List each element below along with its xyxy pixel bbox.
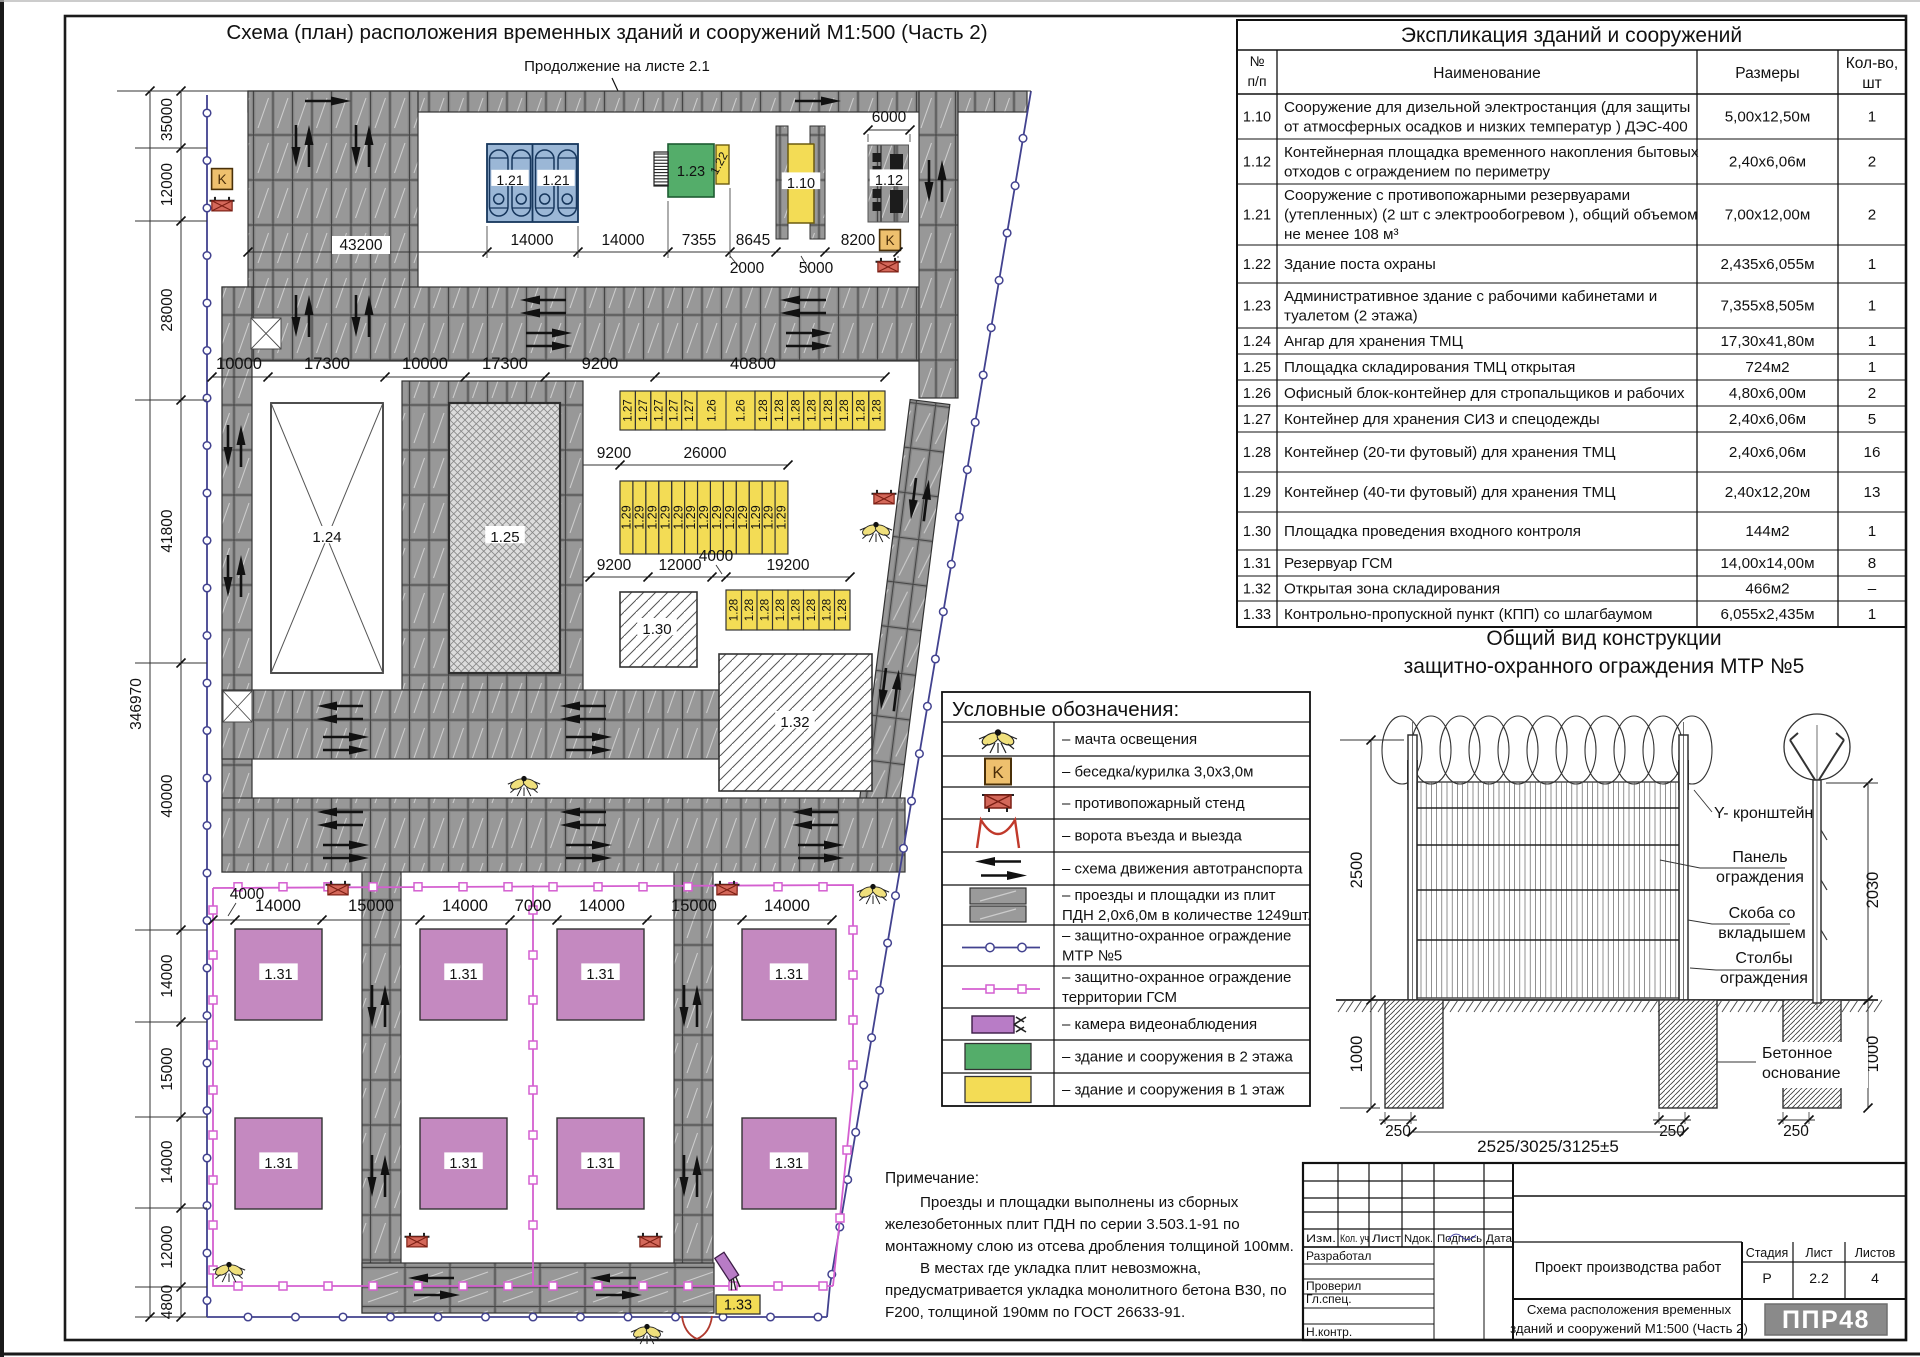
- svg-text:– мачта освещения: – мачта освещения: [1062, 731, 1197, 748]
- svg-text:26000: 26000: [683, 445, 726, 462]
- svg-text:(утепленных) (2 шт с электрооб: (утепленных) (2 шт с электрообогревом ),…: [1284, 207, 1698, 224]
- svg-text:предусматривается укладка моно: предусматривается укладка монолитного бе…: [885, 1282, 1287, 1299]
- svg-text:1.25: 1.25: [490, 529, 519, 546]
- svg-text:1.29: 1.29: [762, 505, 776, 529]
- svg-text:15000: 15000: [348, 897, 394, 915]
- svg-text:1.31: 1.31: [586, 1156, 614, 1172]
- svg-text:Офисный блок-контейнер для стр: Офисный блок-контейнер для стропальщиков…: [1284, 385, 1685, 402]
- svg-text:1.28: 1.28: [837, 599, 849, 621]
- svg-text:Примечание:: Примечание:: [885, 1170, 979, 1187]
- svg-text:7,00х12,00м: 7,00х12,00м: [1725, 207, 1811, 224]
- svg-text:вкладышем: вкладышем: [1718, 925, 1805, 942]
- svg-text:Размеры: Размеры: [1735, 65, 1799, 82]
- svg-text:монтажному слою из отсева дроб: монтажному слою из отсева дробления толщ…: [885, 1238, 1294, 1255]
- svg-text:Резервуар ГСМ: Резервуар ГСМ: [1284, 555, 1393, 572]
- svg-text:п/п: п/п: [1247, 73, 1266, 89]
- svg-text:Столбы: Столбы: [1735, 950, 1792, 967]
- svg-text:17300: 17300: [304, 355, 350, 373]
- svg-text:6000: 6000: [872, 109, 907, 126]
- svg-text:1.28: 1.28: [790, 399, 802, 421]
- svg-text:1000: 1000: [1348, 1036, 1366, 1073]
- svg-text:ПДН 2,0х6,0м в количестве 1249: ПДН 2,0х6,0м в количестве 1249шт.: [1062, 907, 1311, 924]
- svg-text:1: 1: [1868, 333, 1876, 350]
- svg-text:9200: 9200: [582, 355, 619, 373]
- svg-text:Панель: Панель: [1732, 849, 1787, 866]
- svg-text:Nдок.: Nдок.: [1404, 1233, 1433, 1245]
- svg-text:Y- кронштейн: Y- кронштейн: [1714, 805, 1813, 822]
- svg-text:14000: 14000: [764, 897, 810, 915]
- svg-text:2,40х6,06м: 2,40х6,06м: [1729, 411, 1806, 428]
- svg-text:основание: основание: [1762, 1065, 1841, 1082]
- svg-text:1.28: 1.28: [774, 399, 786, 421]
- svg-text:зданий и сооружений М1:500 (Ча: зданий и сооружений М1:500 (Часть 2): [1510, 1321, 1748, 1336]
- svg-text:Стадия: Стадия: [1746, 1246, 1789, 1260]
- svg-text:1.29: 1.29: [1243, 485, 1271, 501]
- svg-text:Общий вид конструкции: Общий вид конструкции: [1486, 627, 1721, 650]
- svg-text:1.31: 1.31: [449, 1156, 477, 1172]
- svg-text:Наименование: Наименование: [1433, 65, 1540, 82]
- svg-text:1.31: 1.31: [1243, 556, 1271, 572]
- svg-text:2525/3025/3125±5: 2525/3025/3125±5: [1477, 1137, 1619, 1156]
- svg-text:– здание и сооружения в 2 эта: – здание и сооружения в 2 этажа: [1062, 1049, 1293, 1066]
- svg-text:Проект производства работ: Проект производства работ: [1535, 1260, 1722, 1276]
- svg-text:F200, толщиной 190мм по ГОСТ 2: F200, толщиной 190мм по ГОСТ 26633-91.: [885, 1304, 1185, 1321]
- svg-text:Административное здание с рабо: Административное здание с рабочими кабин…: [1284, 288, 1657, 305]
- svg-text:144м2: 144м2: [1745, 523, 1789, 540]
- svg-text:1: 1: [1868, 298, 1876, 315]
- svg-text:Р: Р: [1762, 1270, 1771, 1286]
- svg-text:1.28: 1.28: [839, 399, 851, 421]
- svg-text:Площадка складирования ТМЦ отк: Площадка складирования ТМЦ открытая: [1284, 359, 1575, 376]
- svg-text:1.28: 1.28: [758, 399, 770, 421]
- svg-text:1.27: 1.27: [1243, 412, 1271, 428]
- svg-text:– защитно-охранное ограждение: – защитно-охранное ограждение: [1062, 928, 1291, 945]
- svg-text:8645: 8645: [736, 232, 770, 249]
- svg-text:14000: 14000: [601, 232, 644, 249]
- svg-text:1.31: 1.31: [264, 967, 292, 983]
- svg-text:5: 5: [1868, 411, 1876, 428]
- svg-text:МТР №5: МТР №5: [1062, 948, 1122, 965]
- svg-text:1.26: 1.26: [1243, 386, 1271, 402]
- svg-text:–: –: [1868, 581, 1877, 598]
- svg-text:Кол-во,: Кол-во,: [1846, 55, 1899, 72]
- svg-text:2,40х6,06м: 2,40х6,06м: [1729, 444, 1806, 461]
- svg-text:2,40х6,06м: 2,40х6,06м: [1729, 154, 1806, 171]
- svg-text:13: 13: [1864, 484, 1881, 501]
- svg-text:Открытая зона складирования: Открытая зона складирования: [1284, 581, 1500, 598]
- svg-text:14000: 14000: [442, 897, 488, 915]
- svg-text:ППР48: ППР48: [1782, 1306, 1870, 1334]
- svg-text:Контрольно-пропускной пункт (К: Контрольно-пропускной пункт (КПП) со шла…: [1284, 606, 1652, 623]
- svg-text:Н.контр.: Н.контр.: [1306, 1325, 1352, 1339]
- svg-text:1.29: 1.29: [671, 505, 685, 529]
- svg-text:1.29: 1.29: [749, 505, 763, 529]
- svg-text:Бетонное: Бетонное: [1762, 1045, 1832, 1062]
- svg-text:Схема расположения временных: Схема расположения временных: [1527, 1302, 1732, 1317]
- svg-text:1: 1: [1868, 359, 1876, 376]
- svg-text:1.21: 1.21: [496, 172, 523, 188]
- svg-text:10000: 10000: [402, 355, 448, 373]
- svg-text:железобетонных плит ПДН по сер: железобетонных плит ПДН по серии 3.503.1…: [885, 1216, 1240, 1233]
- svg-text:1.27: 1.27: [638, 399, 650, 421]
- svg-text:1.28: 1.28: [791, 599, 803, 621]
- svg-text:1.32: 1.32: [1243, 582, 1271, 598]
- svg-text:14000: 14000: [159, 1140, 176, 1183]
- svg-text:2: 2: [1868, 385, 1876, 402]
- svg-text:19200: 19200: [766, 557, 809, 574]
- svg-text:15000: 15000: [159, 1047, 176, 1090]
- svg-text:Ангар для хранения ТМЦ: Ангар для хранения ТМЦ: [1284, 333, 1463, 350]
- svg-text:28000: 28000: [159, 288, 176, 331]
- svg-text:5000: 5000: [799, 260, 834, 277]
- svg-text:14000: 14000: [579, 897, 625, 915]
- svg-text:2500: 2500: [1348, 852, 1366, 889]
- svg-text:1.28: 1.28: [760, 599, 772, 621]
- svg-text:не менее 108 м³: не менее 108 м³: [1284, 226, 1399, 243]
- svg-text:17300: 17300: [482, 355, 528, 373]
- svg-text:Здание поста охраны: Здание поста охраны: [1284, 256, 1436, 273]
- svg-text:7,355х8,505м: 7,355х8,505м: [1720, 298, 1814, 315]
- svg-text:14000: 14000: [510, 232, 553, 249]
- svg-text:Контейнерная площадка временно: Контейнерная площадка временного накопле…: [1284, 144, 1699, 161]
- svg-text:41800: 41800: [159, 509, 176, 552]
- svg-text:Изм.: Изм.: [1306, 1233, 1336, 1245]
- svg-text:1.29: 1.29: [645, 505, 659, 529]
- svg-text:7355: 7355: [682, 232, 716, 249]
- svg-text:40800: 40800: [730, 355, 776, 373]
- svg-text:1.27: 1.27: [622, 399, 634, 421]
- svg-text:1.24: 1.24: [1243, 334, 1271, 350]
- svg-text:1.28: 1.28: [855, 399, 867, 421]
- svg-text:2,40х12,20м: 2,40х12,20м: [1725, 484, 1811, 501]
- svg-text:территории ГСМ: территории ГСМ: [1062, 989, 1177, 1006]
- svg-text:– противопожарный стенд: – противопожарный стенд: [1062, 795, 1245, 812]
- svg-text:Лист: Лист: [1372, 1233, 1401, 1245]
- svg-text:35000: 35000: [159, 98, 176, 141]
- svg-text:ограждения: ограждения: [1720, 970, 1808, 987]
- svg-text:12000: 12000: [658, 557, 701, 574]
- svg-text:1.28: 1.28: [1243, 445, 1271, 461]
- svg-text:– ворота въезда и выезда: – ворота въезда и выезда: [1062, 828, 1242, 845]
- svg-text:– схема движения автотранспор: – схема движения автотранспорта: [1062, 861, 1303, 878]
- svg-text:4: 4: [1871, 1270, 1879, 1286]
- svg-text:1.31: 1.31: [775, 967, 803, 983]
- svg-text:12000: 12000: [159, 163, 176, 206]
- svg-text:1.26: 1.26: [736, 399, 748, 421]
- svg-text:2: 2: [1868, 154, 1876, 171]
- svg-text:1.29: 1.29: [710, 505, 724, 529]
- svg-text:1: 1: [1868, 606, 1876, 623]
- svg-text:1.30: 1.30: [1243, 524, 1271, 540]
- svg-text:250: 250: [1783, 1123, 1809, 1140]
- svg-text:1.25: 1.25: [1243, 360, 1271, 376]
- svg-text:1.28: 1.28: [744, 599, 756, 621]
- svg-text:Площадка проведения входного к: Площадка проведения входного контроля: [1284, 523, 1581, 540]
- svg-text:1.28: 1.28: [806, 599, 818, 621]
- svg-text:1.21: 1.21: [542, 172, 569, 188]
- svg-text:1.33: 1.33: [724, 1298, 752, 1314]
- svg-text:14,00х14,00м: 14,00х14,00м: [1720, 555, 1814, 572]
- svg-text:1.23: 1.23: [677, 164, 705, 180]
- svg-text:43200: 43200: [339, 237, 382, 254]
- svg-text:Сооружение с противопожарными: Сооружение с противопожарными резервуара…: [1284, 187, 1630, 204]
- svg-text:Разработал: Разработал: [1306, 1249, 1371, 1263]
- svg-text:– проезды и площадки из плит: – проезды и площадки из плит: [1062, 887, 1276, 904]
- svg-text:1: 1: [1868, 109, 1876, 126]
- svg-text:В местах где укладка плит нево: В местах где укладка плит невозможна,: [920, 1260, 1201, 1277]
- svg-text:16: 16: [1864, 444, 1881, 461]
- svg-text:Гл.спец.: Гл.спец.: [1306, 1292, 1352, 1306]
- svg-text:1.29: 1.29: [620, 505, 634, 529]
- svg-text:1.29: 1.29: [633, 505, 647, 529]
- svg-text:1.29: 1.29: [697, 505, 711, 529]
- svg-text:Скоба со: Скоба со: [1729, 905, 1796, 922]
- svg-text:1.28: 1.28: [823, 399, 835, 421]
- svg-text:5,00х12,50м: 5,00х12,50м: [1725, 109, 1811, 126]
- svg-text:защитно-охранного ограждения М: защитно-охранного ограждения МТР №5: [1404, 655, 1805, 678]
- svg-text:14000: 14000: [159, 954, 176, 997]
- svg-text:Экспликация зданий и сооружени: Экспликация зданий и сооружений: [1401, 24, 1742, 47]
- svg-text:4800: 4800: [159, 1284, 176, 1319]
- svg-text:Условные обозначения:: Условные обозначения:: [952, 698, 1179, 721]
- svg-text:Дата: Дата: [1486, 1233, 1513, 1245]
- svg-text:Продолжение на листе 2.1: Продолжение на листе 2.1: [524, 58, 710, 75]
- svg-text:1.30: 1.30: [642, 621, 671, 638]
- svg-text:4,80х6,00м: 4,80х6,00м: [1729, 385, 1806, 402]
- svg-text:ограждения: ограждения: [1716, 869, 1804, 886]
- svg-text:шт: шт: [1862, 75, 1882, 92]
- svg-text:346970: 346970: [128, 678, 145, 730]
- svg-text:1.28: 1.28: [872, 399, 884, 421]
- svg-text:1.29: 1.29: [684, 505, 698, 529]
- svg-text:8200: 8200: [841, 232, 876, 249]
- svg-text:1.26: 1.26: [707, 399, 719, 421]
- svg-text:250: 250: [1385, 1123, 1411, 1140]
- svg-text:1.28: 1.28: [807, 399, 819, 421]
- svg-text:2: 2: [1868, 207, 1876, 224]
- svg-text:туалетом (2 этажа): туалетом (2 этажа): [1284, 307, 1418, 324]
- svg-text:1.27: 1.27: [653, 399, 665, 421]
- svg-text:17,30х41,80м: 17,30х41,80м: [1720, 333, 1814, 350]
- svg-text:1.10: 1.10: [787, 176, 815, 192]
- svg-text:– здание и сооружения в 1 эта: – здание и сооружения в 1 этаж: [1062, 1082, 1284, 1099]
- svg-text:8: 8: [1868, 555, 1876, 572]
- svg-text:2,435х6,055м: 2,435х6,055м: [1720, 256, 1814, 273]
- svg-text:отходов с ограждением по перим: отходов с ограждением по периметру: [1284, 163, 1550, 180]
- svg-text:– беседка/курилка 3,0х3,0м: – беседка/курилка 3,0х3,0м: [1062, 764, 1253, 781]
- svg-text:Контейнер (40-ти футовый) для: Контейнер (40-ти футовый) для хранения Т…: [1284, 484, 1615, 501]
- svg-text:15000: 15000: [671, 897, 717, 915]
- svg-text:1.22: 1.22: [1243, 257, 1271, 273]
- svg-text:4000: 4000: [230, 886, 265, 903]
- svg-text:1: 1: [1868, 256, 1876, 273]
- svg-text:Сооружение для дизельной элект: Сооружение для дизельной электростанция …: [1284, 99, 1690, 116]
- svg-text:1.12: 1.12: [875, 173, 903, 189]
- svg-text:1.24: 1.24: [312, 529, 341, 546]
- svg-text:Проверил: Проверил: [1306, 1279, 1361, 1293]
- svg-text:1.29: 1.29: [658, 505, 672, 529]
- svg-text:№: №: [1249, 53, 1264, 69]
- svg-text:Схема (план) расположения врем: Схема (план) расположения временных здан…: [226, 21, 987, 44]
- svg-text:1.21: 1.21: [1243, 208, 1271, 224]
- svg-text:Кол. уч: Кол. уч: [1340, 1233, 1369, 1245]
- svg-text:40000: 40000: [159, 774, 176, 817]
- svg-text:1.29: 1.29: [723, 505, 737, 529]
- svg-text:1.10: 1.10: [1243, 110, 1271, 126]
- svg-text:Контейнер для хранения СИЗ и с: Контейнер для хранения СИЗ и спецодежды: [1284, 411, 1600, 428]
- svg-text:1.28: 1.28: [822, 599, 834, 621]
- svg-text:1.31: 1.31: [449, 967, 477, 983]
- svg-text:10000: 10000: [216, 355, 262, 373]
- svg-text:1.28: 1.28: [775, 599, 787, 621]
- svg-text:– камера видеонаблюдения: – камера видеонаблюдения: [1062, 1016, 1257, 1033]
- svg-text:9200: 9200: [597, 557, 632, 574]
- svg-text:4000: 4000: [699, 548, 734, 565]
- svg-text:Проезды и площадки выполнены и: Проезды и площадки выполнены из сборных: [920, 1194, 1239, 1211]
- svg-text:724м2: 724м2: [1745, 359, 1789, 376]
- svg-text:2030: 2030: [1864, 872, 1882, 909]
- svg-text:1.28: 1.28: [729, 599, 741, 621]
- svg-text:1.32: 1.32: [780, 714, 809, 731]
- svg-text:1.27: 1.27: [669, 399, 681, 421]
- svg-text:12000: 12000: [159, 1225, 176, 1268]
- svg-text:6,055х2,435м: 6,055х2,435м: [1720, 606, 1814, 623]
- svg-text:1.33: 1.33: [1243, 607, 1271, 623]
- svg-text:1: 1: [1868, 523, 1876, 540]
- svg-text:466м2: 466м2: [1745, 581, 1789, 598]
- svg-text:1.31: 1.31: [264, 1156, 292, 1172]
- svg-text:1.23: 1.23: [1243, 299, 1271, 315]
- svg-text:1.29: 1.29: [775, 505, 789, 529]
- svg-text:7000: 7000: [515, 897, 552, 915]
- svg-text:Контейнер (20-ти футовый) для: Контейнер (20-ти футовый) для хранения Т…: [1284, 444, 1615, 461]
- svg-text:9200: 9200: [597, 445, 632, 462]
- svg-text:Лист: Лист: [1805, 1246, 1832, 1260]
- svg-text:1.27: 1.27: [684, 399, 696, 421]
- svg-text:1.31: 1.31: [586, 967, 614, 983]
- svg-text:Листов: Листов: [1855, 1246, 1896, 1260]
- svg-text:– защитно-охранное ограждение: – защитно-охранное ограждение: [1062, 969, 1291, 986]
- svg-text:1.31: 1.31: [775, 1156, 803, 1172]
- svg-text:2.2: 2.2: [1809, 1270, 1829, 1286]
- svg-text:от атмосферных осадков и низки: от атмосферных осадков и низких температ…: [1284, 118, 1688, 135]
- svg-text:1.29: 1.29: [736, 505, 750, 529]
- svg-text:1.12: 1.12: [1243, 155, 1271, 171]
